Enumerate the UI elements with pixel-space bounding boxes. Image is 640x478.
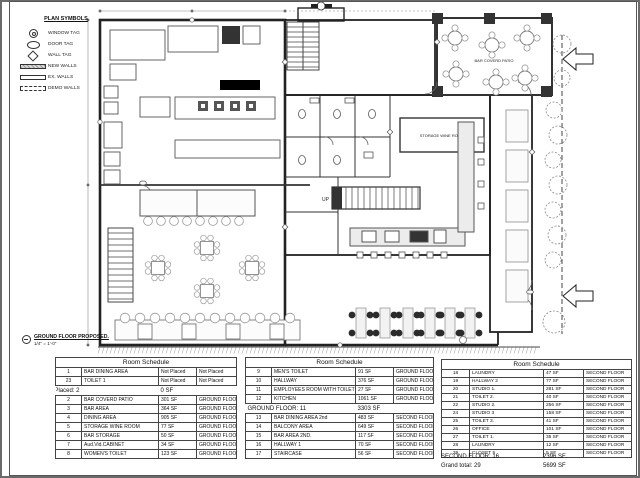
plan-title: GROUND FLOOR PROPOSED. — [34, 334, 109, 340]
cell: GROUND FLOOR — [197, 396, 237, 405]
cell: SECOND FLOOR — [584, 442, 632, 450]
schedule-title-row: Room Schedule — [246, 358, 434, 368]
cell: SECOND FLOOR — [394, 432, 434, 441]
cell: GROUND FLOOR — [394, 395, 434, 404]
table-row: 23TOILET 1Not PlacedNot Placed — [56, 377, 237, 386]
cell: 12 — [246, 395, 272, 404]
cell: SECOND FLOOR — [584, 378, 632, 386]
cell: EMPLOYEES ROOM WITH TOILET — [272, 386, 356, 395]
cell: 23 — [56, 377, 82, 386]
cell: 8 — [56, 450, 82, 459]
plan-scale: 1/4" = 1'-0" — [34, 341, 109, 346]
cell: GROUND FLOOR — [197, 423, 237, 432]
cell: 649 SF — [356, 423, 394, 432]
cell: BAR AREA 2ND. — [272, 432, 356, 441]
schedule-title-row: Room Schedule — [442, 360, 632, 370]
cell: GROUND FLOOR — [197, 441, 237, 450]
cell: BAR COVERD PATIO — [82, 396, 159, 405]
table-row: 25TOILET 3.41 SFSECOND FLOOR — [442, 418, 632, 426]
cell: STORAGE WINE ROOM — [82, 423, 159, 432]
hallway-banquettes — [506, 110, 528, 302]
cell: 905 SF — [159, 414, 197, 423]
cell: BAR DINING AREA 2nd — [272, 414, 356, 423]
cell: STUDIO 1. — [470, 386, 544, 394]
cell: 26 — [442, 426, 470, 434]
plan-symbols-legend: PLAN SYMBOLS WINDOW TAG DOOR TAG WALL TA… — [18, 16, 104, 95]
cell: 16 — [246, 441, 272, 450]
cell: GROUND FLOOR — [197, 405, 237, 414]
schedule-title-row: Room Schedule — [56, 358, 237, 368]
cell: GROUND FLOOR: 11 — [246, 404, 356, 414]
table-row: 20STUDIO 1.281 SFSECOND FLOOR — [442, 386, 632, 394]
cell: 12 SF — [544, 442, 584, 450]
table-row: 6BAR STORAGE50 SFGROUND FLOOR — [56, 432, 237, 441]
dining-tables — [145, 235, 265, 304]
ex-walls-icon — [18, 75, 48, 80]
drawing-sheet: { "legend": { "title": "PLAN SYMBOLS", "… — [0, 0, 640, 478]
cell: 56 SF — [356, 450, 394, 459]
cell: Not Placed — [159, 368, 197, 377]
second-floor-total-row: SECOND FLOOR: 16 2396 SF — [441, 453, 631, 462]
cell: 10 — [246, 377, 272, 386]
second-floor-total-value: 2396 SF — [543, 453, 566, 462]
cell: 0 SF — [159, 386, 197, 396]
cell: 27 — [442, 434, 470, 442]
cell: OFFICE — [470, 426, 544, 434]
staircase-bar: UP — [322, 187, 420, 209]
cell: KITCHEN — [272, 395, 356, 404]
dining-bench — [115, 320, 300, 340]
cell: SECOND FLOOR — [584, 386, 632, 394]
window-tag-icon — [18, 29, 48, 38]
section-marker — [311, 2, 332, 10]
cell: SECOND FLOOR — [584, 370, 632, 378]
cell: STUDIO 2. — [470, 402, 544, 410]
toilet-fixtures — [299, 98, 376, 165]
cell: 70 SF — [356, 441, 394, 450]
cell: 15 — [246, 432, 272, 441]
staircase-top — [287, 22, 319, 70]
schedule-totals: SECOND FLOOR: 16 2396 SF Grand total: 29… — [441, 453, 631, 471]
drawing-title-icon — [22, 335, 31, 344]
cell: 34 SF — [159, 441, 197, 450]
cell: 7 — [56, 441, 82, 450]
wall-tag-icon — [18, 52, 48, 60]
cell: Not Placed — [197, 368, 237, 377]
grand-total-label: Grand total: 29 — [441, 462, 543, 471]
cell: BAR STORAGE — [82, 432, 159, 441]
table-row: 1BAR DINING AREANot PlacedNot Placed — [56, 368, 237, 377]
cell: 281 SF — [544, 386, 584, 394]
cell: GROUND FLOOR — [197, 414, 237, 423]
cell: TOILET 3. — [470, 418, 544, 426]
sidewalk-hatch — [98, 347, 540, 354]
cell: STUDIO 3 — [470, 410, 544, 418]
table-row: 8WOMEN'S TOILET123 SFGROUND FLOOR — [56, 450, 237, 459]
cell: 101 SF — [544, 426, 584, 434]
legend-title: PLAN SYMBOLS — [28, 16, 104, 22]
cell: GROUND FLOOR — [197, 450, 237, 459]
grand-total-value: 5699 SF — [543, 462, 566, 471]
cell: SECOND FLOOR — [584, 434, 632, 442]
cell: 6 — [56, 432, 82, 441]
cell: STAIRCASE — [272, 450, 356, 459]
patio-label: BAR COVERD PATIO — [475, 58, 514, 63]
cell: 4 — [56, 414, 82, 423]
cell: 20 — [442, 386, 470, 394]
cell: Room Schedule — [442, 360, 632, 370]
room-schedule-table-1: Room Schedule1BAR DINING AREANot PlacedN… — [55, 357, 237, 459]
demo-walls-icon — [18, 86, 48, 91]
cell: 24 — [442, 410, 470, 418]
new-walls-icon — [18, 64, 48, 69]
cell: BALCONY AREA — [272, 423, 356, 432]
cell: SECOND FLOOR — [584, 402, 632, 410]
cell: 47 SF — [544, 370, 584, 378]
cell: 123 SF — [159, 450, 197, 459]
bar-tables — [349, 308, 483, 344]
cell: SECOND FLOOR — [584, 418, 632, 426]
table-row: 4DINING AREA905 SFGROUND FLOOR — [56, 414, 237, 423]
cell: LAUNDRY — [470, 370, 544, 378]
table-row: 17STAIRCASE56 SFSECOND FLOOR — [246, 450, 434, 459]
cell: 9 — [246, 368, 272, 377]
room-schedule-table-2: Room Schedule9MEN'S TOILET91 SFGROUND FL… — [245, 357, 434, 459]
cell: 14 — [246, 423, 272, 432]
cell: GROUND FLOOR — [197, 432, 237, 441]
cell: 77 SF — [544, 378, 584, 386]
cell: DINING AREA — [82, 414, 159, 423]
cell: 17 — [246, 450, 272, 459]
table-row: 28LAUNDRY12 SFSECOND FLOOR — [442, 442, 632, 450]
cell: 2 — [56, 396, 82, 405]
cell: 77 SF — [159, 423, 197, 432]
cell: 117 SF — [356, 432, 394, 441]
cell: 27 SF — [356, 386, 394, 395]
cell: 364 SF — [159, 405, 197, 414]
cell: 21 — [442, 394, 470, 402]
cell: 25 — [442, 418, 470, 426]
table-row: 10HALLWAY376 SFGROUND FLOOR — [246, 377, 434, 386]
cell: Not Placed — [197, 377, 237, 386]
table-row: 7Aud.Vid.CABINET34 SFGROUND FLOOR — [56, 441, 237, 450]
table-row: 16HALLWAY 170 SFSECOND FLOOR — [246, 441, 434, 450]
cell: 1061 SF — [356, 395, 394, 404]
cell: 22 — [442, 402, 470, 410]
cell: SECOND FLOOR — [394, 441, 434, 450]
table-row: 21TOILET 2.40 SFSECOND FLOOR — [442, 394, 632, 402]
legend-item-ex-walls: EX. WALLS — [18, 73, 104, 82]
cell — [197, 386, 237, 396]
cell: Room Schedule — [56, 358, 237, 368]
second-floor-total-label: SECOND FLOOR: 16 — [441, 453, 543, 462]
cell: 256 SF — [544, 402, 584, 410]
cell: SECOND FLOOR — [394, 414, 434, 423]
cell: HALLWAY 1 — [272, 441, 356, 450]
summary-row: GROUND FLOOR: 113303 SF — [246, 404, 434, 414]
cell: 376 SF — [356, 377, 394, 386]
table-row: 19HALLWAY 277 SFSECOND FLOOR — [442, 378, 632, 386]
cell: Not Placed — [159, 377, 197, 386]
cell: TOILET 2. — [470, 394, 544, 402]
cell: TOILET 1 — [82, 377, 159, 386]
cell: Not Placed: 2 — [56, 386, 159, 396]
cell: GROUND FLOOR — [394, 377, 434, 386]
cell: 3303 SF — [356, 404, 394, 414]
table-row: 27TOILET 1.35 SFSECOND FLOOR — [442, 434, 632, 442]
table-row: 5STORAGE WINE ROOM77 SFGROUND FLOOR — [56, 423, 237, 432]
table-row: 13BAR DINING AREA 2nd483 SFSECOND FLOOR — [246, 414, 434, 423]
table-row: 26OFFICE101 SFSECOND FLOOR — [442, 426, 632, 434]
cell: 35 SF — [544, 434, 584, 442]
up-label: UP — [322, 197, 330, 203]
door-tag-icon — [18, 41, 48, 49]
cell: SECOND FLOOR — [584, 410, 632, 418]
cell: HALLWAY 2 — [470, 378, 544, 386]
cell: Aud.Vid.CABINET — [82, 441, 159, 450]
cell: TOILET 1. — [470, 434, 544, 442]
legend-item-door-tag: DOOR TAG — [18, 40, 104, 49]
table-row: 3BAR AREA364 SFGROUND FLOOR — [56, 405, 237, 414]
cell: 18 — [442, 370, 470, 378]
cell: MEN'S TOILET — [272, 368, 356, 377]
table-row: 15BAR AREA 2ND.117 SFSECOND FLOOR — [246, 432, 434, 441]
booth-chairs — [144, 217, 244, 226]
entry-arrow-bottom — [563, 285, 593, 307]
cell: SECOND FLOOR — [584, 426, 632, 434]
cell: 41 SF — [544, 418, 584, 426]
cell: 158 SF — [544, 410, 584, 418]
cell: 13 — [246, 414, 272, 423]
table-row: 18LAUNDRY47 SFSECOND FLOOR — [442, 370, 632, 378]
legend-item-wall-tag: WALL TAG — [18, 51, 104, 60]
table-row: 14BALCONY AREA649 SFSECOND FLOOR — [246, 423, 434, 432]
cell: 1 — [56, 368, 82, 377]
cell: LAUNDRY — [470, 442, 544, 450]
cell — [394, 404, 434, 414]
ground-floor-plan: BAR COVERD PATIO STORAGE WINE ROOM UP — [80, 2, 635, 358]
table-row: 12KITCHEN1061 SFGROUND FLOOR — [246, 395, 434, 404]
cell: 301 SF — [159, 396, 197, 405]
table-row: 22STUDIO 2.256 SFSECOND FLOOR — [442, 402, 632, 410]
grand-total-row: Grand total: 29 5699 SF — [441, 462, 631, 471]
cell: HALLWAY — [272, 377, 356, 386]
cell: 5 — [56, 423, 82, 432]
dining-booths — [140, 190, 255, 216]
cell: SECOND FLOOR — [394, 423, 434, 432]
cell: GROUND FLOOR — [394, 386, 434, 395]
legend-item-window-tag: WINDOW TAG — [18, 29, 104, 38]
kitchen-equipment — [104, 26, 280, 184]
room-schedule-table-3: Room Schedule18LAUNDRY47 SFSECOND FLOOR1… — [441, 359, 632, 458]
cell: Room Schedule — [246, 358, 434, 368]
cell: 91 SF — [356, 368, 394, 377]
cell: 50 SF — [159, 432, 197, 441]
cell: 3 — [56, 405, 82, 414]
table-row: 24STUDIO 3158 SFSECOND FLOOR — [442, 410, 632, 418]
cell: 28 — [442, 442, 470, 450]
cell: 483 SF — [356, 414, 394, 423]
table-row: 2BAR COVERD PATIO301 SFGROUND FLOOR — [56, 396, 237, 405]
plan-title-block: GROUND FLOOR PROPOSED. 1/4" = 1'-0" — [22, 334, 109, 346]
legend-item-new-walls: NEW WALLS — [18, 62, 104, 71]
cell: SECOND FLOOR — [394, 450, 434, 459]
cell: 19 — [442, 378, 470, 386]
cell: 11 — [246, 386, 272, 395]
table-row: 9MEN'S TOILET91 SFGROUND FLOOR — [246, 368, 434, 377]
summary-row: Not Placed: 20 SF — [56, 386, 237, 396]
landscaping — [543, 35, 571, 333]
cell: BAR AREA — [82, 405, 159, 414]
table-row: 11EMPLOYEES ROOM WITH TOILET27 SFGROUND … — [246, 386, 434, 395]
cell: BAR DINING AREA — [82, 368, 159, 377]
cell: SECOND FLOOR — [584, 394, 632, 402]
cell: WOMEN'S TOILET — [82, 450, 159, 459]
cell: 40 SF — [544, 394, 584, 402]
legend-item-demo-walls: DEMO WALLS — [18, 84, 104, 93]
cell: GROUND FLOOR — [394, 368, 434, 377]
